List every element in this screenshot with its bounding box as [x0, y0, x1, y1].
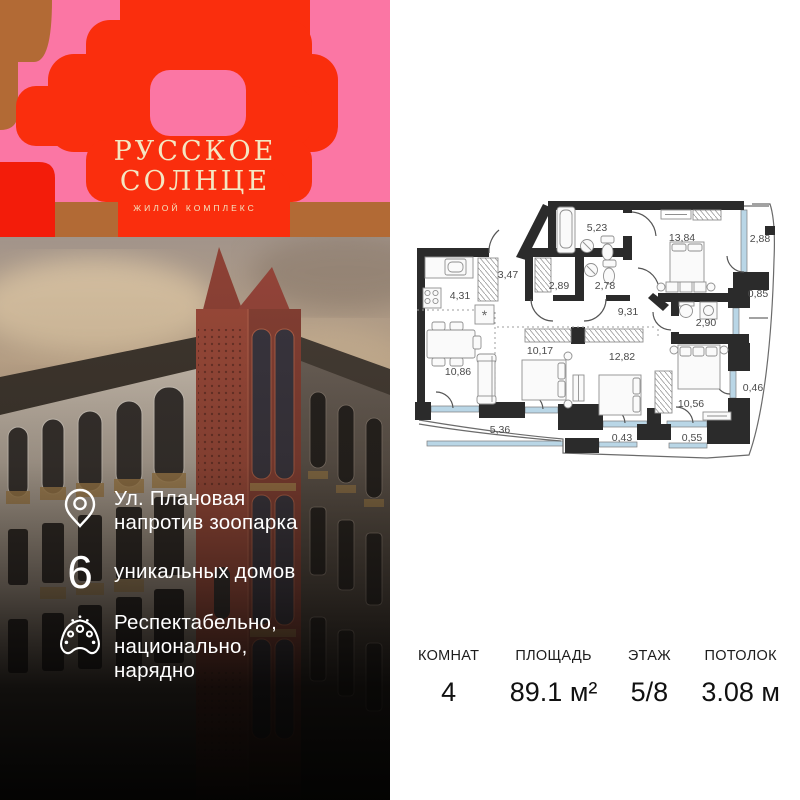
- room-area-loggia-small: 0,85: [748, 288, 769, 300]
- feature-list: Ул. Плановая напротив зоопарка 6 уникаль…: [54, 487, 384, 697]
- stat-floor-value: 5/8: [628, 677, 671, 708]
- stat-floor: ЭТАЖ 5/8: [628, 648, 671, 708]
- room-area-bedroom-1: 13,84: [669, 232, 695, 244]
- stat-rooms: КОМНАТ 4: [418, 648, 479, 708]
- room-area-balcony-2: 0,55: [682, 432, 703, 444]
- room-area-bedroom-3: 12,82: [609, 351, 635, 363]
- room-area-wardrobe: 2,89: [549, 280, 570, 292]
- apartment-panel: *: [390, 0, 800, 800]
- floor-plan: *: [415, 198, 787, 470]
- feature-houses: 6 уникальных домов: [54, 549, 384, 595]
- room-area-bedroom-2: 10,17: [527, 345, 553, 357]
- room-area-bathroom-small: 2,90: [696, 317, 717, 329]
- feature-location: Ул. Плановая напротив зоопарка: [54, 487, 384, 535]
- kokoshnik-icon: [57, 611, 103, 683]
- building-photo: Ул. Плановая напротив зоопарка 6 уникаль…: [0, 237, 390, 800]
- stat-area: ПЛОЩАДЬ 89.1 м²: [510, 648, 598, 708]
- room-area-loggia-top: 2,88: [750, 233, 771, 245]
- room-area-bedroom-4: 10,56: [678, 398, 704, 410]
- stat-ceiling: ПОТОЛОК 3.08 м: [701, 648, 780, 708]
- stat-ceiling-label: ПОТОЛОК: [701, 648, 780, 664]
- room-area-corridor: 9,31: [618, 306, 639, 318]
- room-area-kitchen: 4,31: [450, 290, 471, 302]
- stat-ceiling-value: 3.08 м: [701, 677, 780, 708]
- location-pin-icon: [63, 487, 97, 535]
- feature-style-text: Респектабельно, национально, нарядно: [114, 611, 277, 683]
- houses-count: 6: [54, 549, 106, 595]
- brand-title-line2: СОЛНЦЕ: [0, 167, 390, 197]
- brand-subtitle: жилой комплекс: [0, 203, 390, 213]
- room-area-balcony-bottom: 5,36: [490, 424, 511, 436]
- feature-houses-text: уникальных домов: [114, 560, 295, 584]
- stat-area-value: 89.1 м²: [510, 677, 598, 708]
- room-area-bathroom-main: 5,23: [587, 222, 608, 234]
- stat-area-label: ПЛОЩАДЬ: [510, 648, 598, 664]
- brand-title-line1: РУССКОЕ: [0, 137, 390, 167]
- stat-rooms-value: 4: [418, 677, 479, 708]
- room-area-living: 10,86: [445, 366, 471, 378]
- brand-hero-panel: РУССКОЕ СОЛНЦЕ жилой комплекс: [0, 0, 390, 800]
- feature-style: Респектабельно, национально, нарядно: [54, 611, 384, 683]
- feature-location-text: Ул. Плановая напротив зоопарка: [114, 487, 298, 535]
- room-area-loggia-right: 0,46: [743, 382, 764, 394]
- stat-floor-label: ЭТАЖ: [628, 648, 671, 664]
- room-area-hallway: 3,47: [498, 269, 519, 281]
- room-area-balcony-1: 0,43: [612, 432, 633, 444]
- apartment-stats: КОМНАТ 4 ПЛОЩАДЬ 89.1 м² ЭТАЖ 5/8 ПОТОЛО…: [418, 648, 780, 708]
- brand-logo: РУССКОЕ СОЛНЦЕ жилой комплекс: [0, 137, 390, 213]
- stat-rooms-label: КОМНАТ: [418, 648, 479, 664]
- room-area-bathroom-guest: 2,78: [595, 280, 616, 292]
- brand-artwork: РУССКОЕ СОЛНЦЕ жилой комплекс: [0, 0, 390, 237]
- svg-text:*: *: [482, 307, 488, 323]
